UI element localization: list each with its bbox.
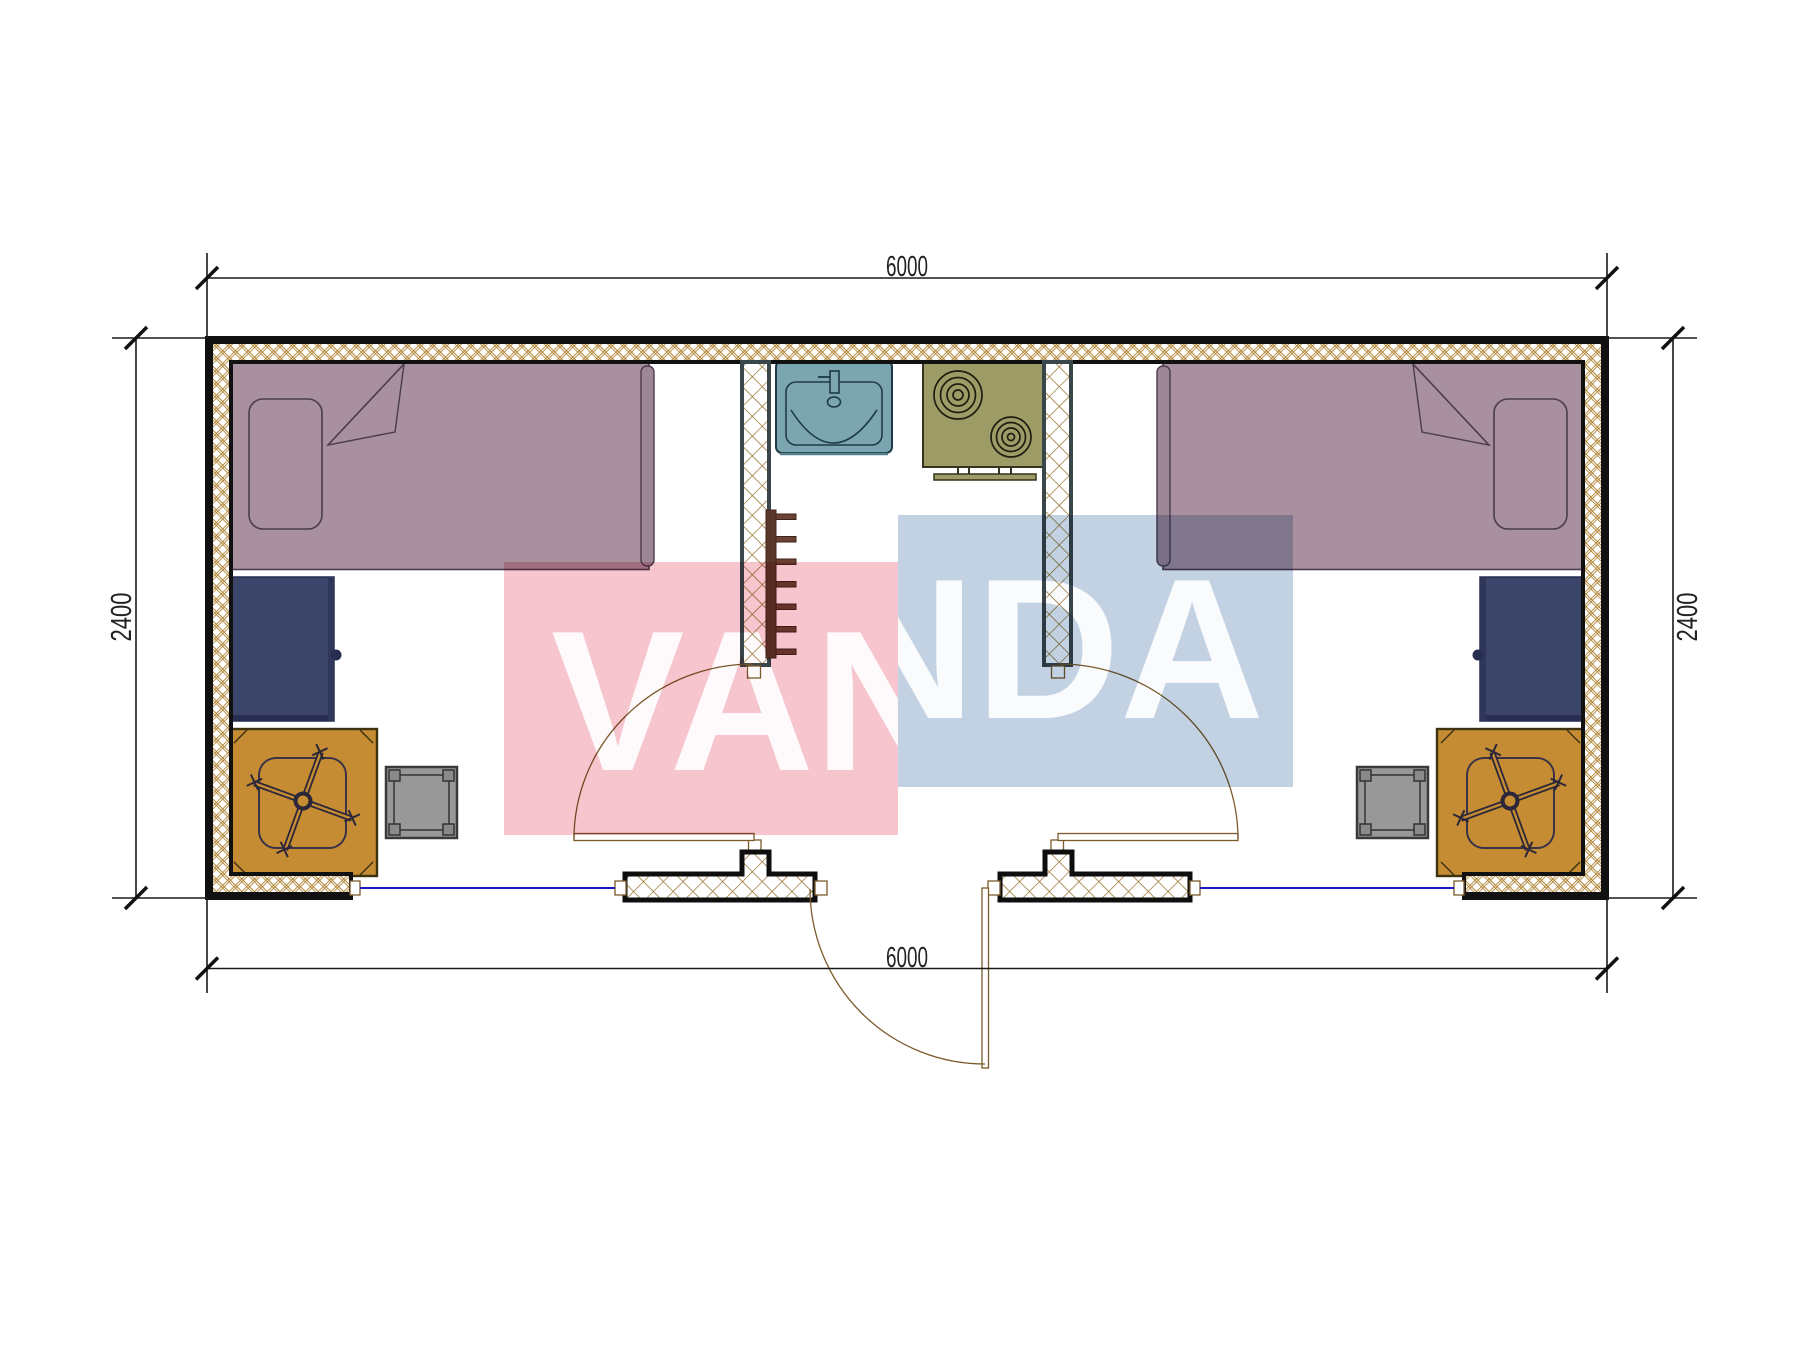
svg-text:6000: 6000 <box>886 251 928 283</box>
svg-text:2400: 2400 <box>1672 593 1704 642</box>
svg-text:6000: 6000 <box>886 942 928 974</box>
svg-text:2400: 2400 <box>106 593 138 642</box>
